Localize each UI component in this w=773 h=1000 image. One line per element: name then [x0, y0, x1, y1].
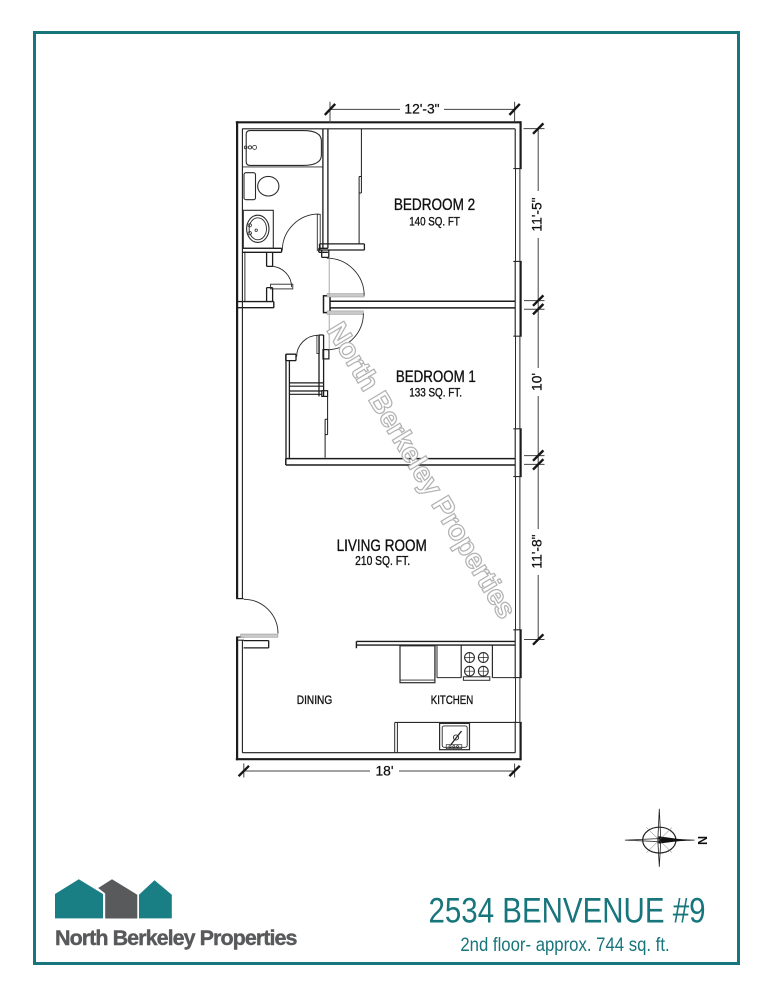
svg-text:DINING: DINING: [297, 694, 332, 707]
svg-text:12'-3": 12'-3": [404, 102, 439, 117]
svg-text:18': 18': [376, 764, 394, 779]
svg-text:11'-8": 11'-8": [530, 534, 545, 568]
svg-text:North Berkeley Properties: North Berkeley Properties: [320, 317, 522, 624]
svg-text:10': 10': [530, 373, 545, 391]
svg-text:140 SQ. FT: 140 SQ. FT: [409, 215, 460, 228]
svg-text:11'-5": 11'-5": [530, 197, 545, 231]
svg-text:133 SQ. FT.: 133 SQ. FT.: [409, 387, 462, 400]
svg-text:BEDROOM 1: BEDROOM 1: [396, 368, 476, 387]
svg-text:2nd floor- approx. 744 sq. ft.: 2nd floor- approx. 744 sq. ft.: [460, 934, 669, 955]
svg-text:KITCHEN: KITCHEN: [431, 694, 474, 707]
svg-text:210 SQ. FT.: 210 SQ. FT.: [355, 554, 410, 568]
svg-text:North Berkeley Properties: North Berkeley Properties: [55, 926, 298, 950]
svg-text:2534 BENVENUE #9: 2534 BENVENUE #9: [428, 890, 705, 930]
svg-text:BEDROOM 2: BEDROOM 2: [394, 196, 475, 215]
svg-text:LIVING ROOM: LIVING ROOM: [337, 537, 427, 556]
svg-text:N: N: [695, 836, 709, 845]
